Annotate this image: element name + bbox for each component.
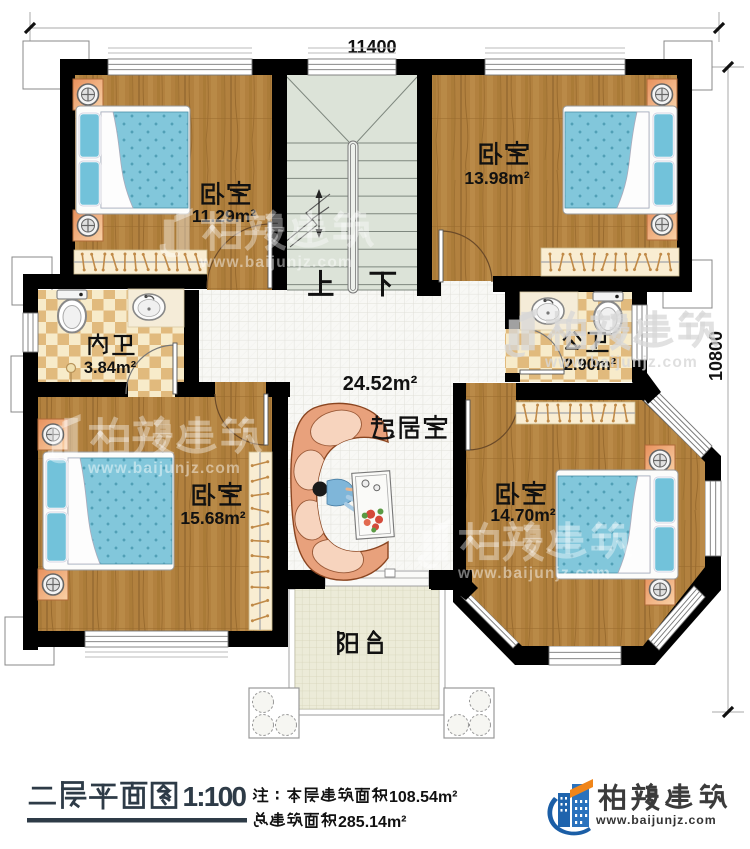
svg-text:1:100: 1:100 <box>183 781 247 812</box>
svg-text:24.52m²: 24.52m² <box>343 373 418 395</box>
svg-text:11400: 11400 <box>347 37 396 57</box>
svg-text:10800: 10800 <box>706 331 726 381</box>
svg-text:15.68m²: 15.68m² <box>180 508 245 528</box>
svg-text:108.54m²: 108.54m² <box>389 789 458 806</box>
svg-text:14.70m²: 14.70m² <box>490 505 555 525</box>
svg-text:3.84m²: 3.84m² <box>84 359 137 377</box>
svg-text:www.baijunjz.com: www.baijunjz.com <box>199 254 353 271</box>
svg-text:www.baijunjz.com: www.baijunjz.com <box>87 460 241 477</box>
svg-text:13.98m²: 13.98m² <box>464 168 529 188</box>
svg-text:www.baijunjz.com: www.baijunjz.com <box>595 813 717 827</box>
svg-text:285.14m²: 285.14m² <box>338 814 407 831</box>
svg-text:www.baijunjz.com: www.baijunjz.com <box>457 565 611 582</box>
svg-text:www.baijunjz.com: www.baijunjz.com <box>544 354 698 371</box>
